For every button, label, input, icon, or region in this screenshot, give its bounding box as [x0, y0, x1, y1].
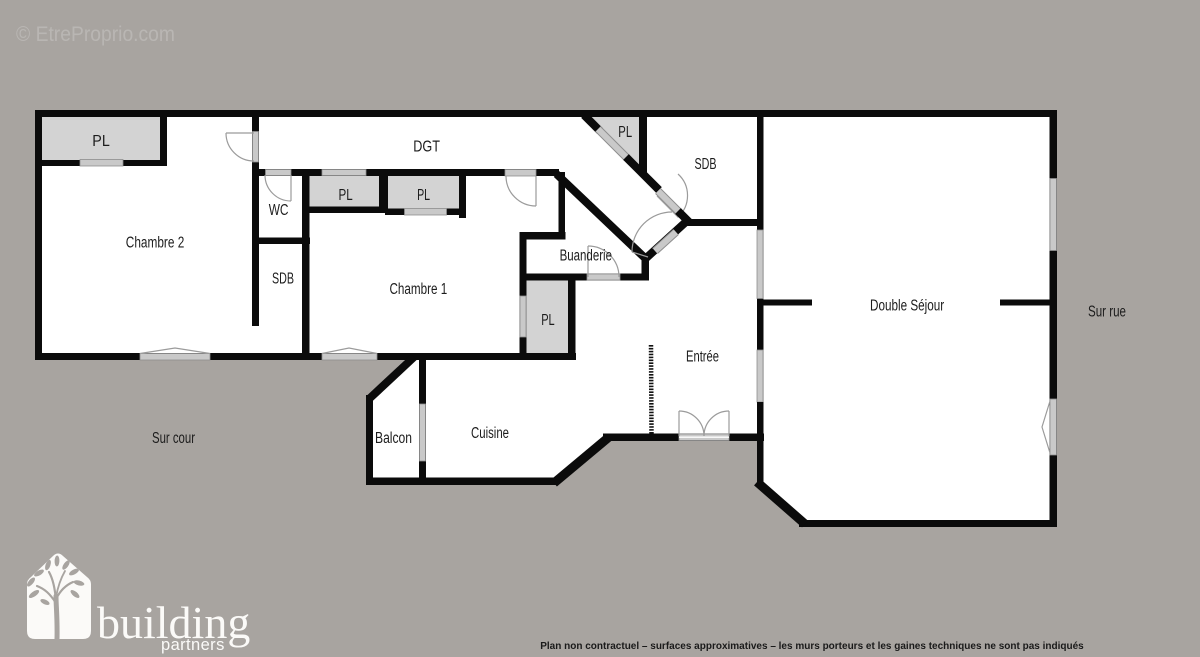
svg-text:Chambre 2: Chambre 2: [126, 235, 185, 252]
svg-text:Double Séjour: Double Séjour: [870, 298, 944, 315]
svg-text:Entrée: Entrée: [686, 348, 719, 365]
svg-text:Sur rue: Sur rue: [1088, 304, 1126, 321]
svg-text:PL: PL: [417, 187, 430, 204]
svg-text:DGT: DGT: [413, 139, 440, 156]
svg-text:PL: PL: [618, 124, 632, 141]
svg-text:PL: PL: [541, 312, 555, 329]
svg-text:Balcon: Balcon: [375, 430, 412, 447]
svg-text:Buanderie: Buanderie: [560, 248, 612, 265]
svg-text:SDB: SDB: [272, 271, 294, 288]
svg-text:Plan non contractuel – surface: Plan non contractuel – surfaces approxim…: [540, 641, 1084, 652]
svg-text:PL: PL: [339, 187, 353, 204]
svg-text:WC: WC: [269, 202, 289, 219]
svg-text:Sur cour: Sur cour: [152, 430, 195, 447]
svg-text:SDB: SDB: [695, 156, 717, 173]
svg-text:partners: partners: [161, 636, 225, 654]
svg-text:Cuisine: Cuisine: [471, 425, 509, 442]
svg-text:Chambre 1: Chambre 1: [390, 281, 448, 298]
svg-text:PL: PL: [92, 133, 110, 150]
svg-text:© EtreProprio.com: © EtreProprio.com: [16, 23, 175, 46]
